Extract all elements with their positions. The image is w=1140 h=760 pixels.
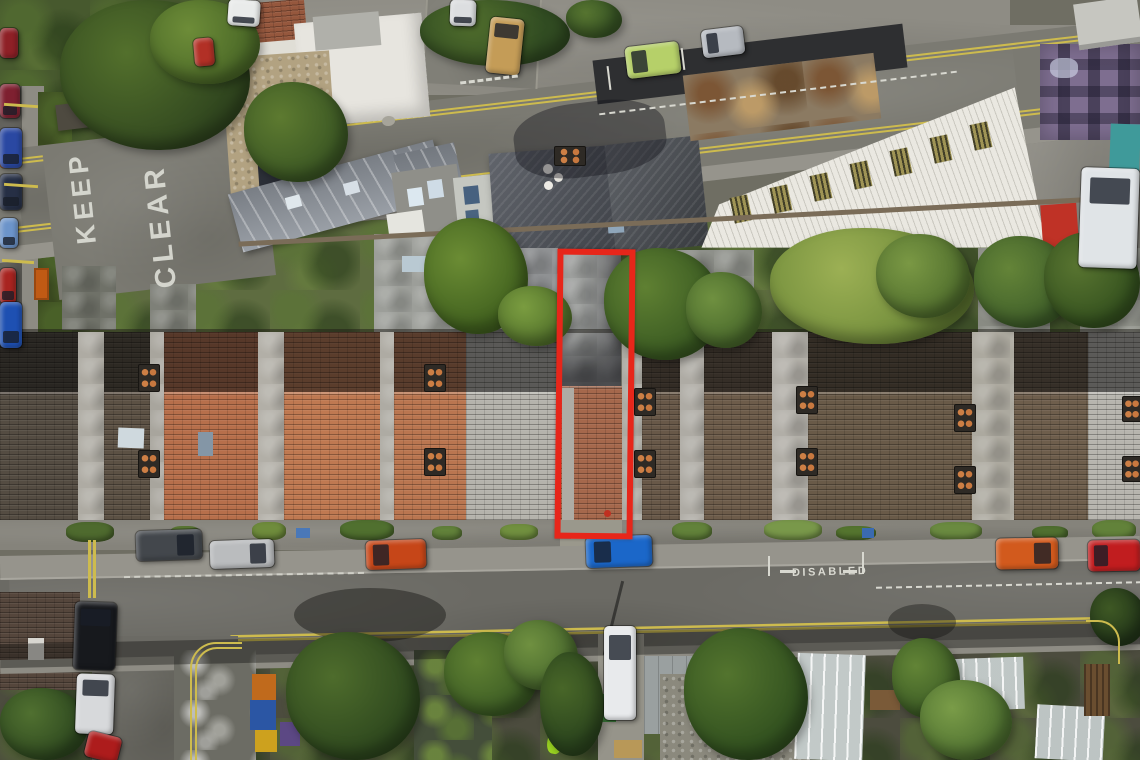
hedge [252,522,286,540]
campervan-white-windshield [609,635,631,659]
hedge [500,524,538,540]
junction-yellow-2 [93,540,96,598]
terrace-roof-front [704,392,772,527]
car-black-suv-windshield [81,608,111,627]
chimney-12 [1122,456,1140,482]
car-white-van-top-windshield [232,16,255,24]
car-black-suv [73,601,117,670]
tree [876,234,970,318]
terrace-roof-front [284,392,380,527]
terrace-roof-front [1014,392,1088,527]
car-red-left-windshield [2,291,13,300]
rooflight-2 [427,179,444,199]
hedge [432,526,462,540]
roof-vent-3 [544,181,553,190]
junction-yellow-1 [88,540,91,598]
chimney-2 [138,450,160,478]
car-dark-red-left [0,28,18,58]
terrace-roof-rear [1014,332,1088,392]
car-white-bottom-left [75,673,115,734]
rooflight-1 [407,187,424,207]
hedge [930,522,982,540]
terrace-roof-front [0,392,78,527]
wood-fence [1084,664,1110,716]
tree-shadow-road-1 [294,588,446,642]
bin-orange [252,674,276,700]
car-blue-street-windshield [594,541,612,563]
chimney-7 [796,386,818,414]
car-white-bottom-left-windshield [82,680,109,697]
aerial-photograph: KEEP CLEAR DISABLED [0,0,1140,760]
car-blue-van-left [0,302,22,348]
chimney-8 [796,448,818,476]
rear-extension-b [150,284,196,332]
car-silver-top-road-windshield [706,33,719,54]
car-red-parked-top [193,37,215,67]
front-garden-bin-1 [296,528,310,538]
chimney-11 [1122,396,1140,422]
car-silver-street-windshield [249,543,266,563]
terrace-roof-front [164,392,258,527]
chimney-6 [634,450,656,478]
hedge [340,520,394,540]
white-house-roof [313,11,382,51]
car-lime-green-windshield [631,50,648,74]
party-wall-roof [258,332,284,522]
campervan-white [604,626,636,720]
car-orange-red-street [366,539,427,570]
front-garden-bin-2 [862,528,874,538]
car-maroon-left [0,84,20,118]
truck-white-top-right-windshield [1089,177,1131,204]
car-tan-side-street-windshield [494,22,519,39]
roof-skylight-2 [198,432,213,456]
hedge [672,522,712,540]
party-wall-roof [150,332,164,522]
party-wall-roof [380,332,394,522]
slate-chimney [554,146,586,166]
hedge [764,520,822,540]
car-silver-street [210,539,275,569]
yellow-corner-2 [195,647,242,760]
chimney-4 [424,448,446,476]
car-dark-grey-street-windshield [177,534,195,556]
tree [920,680,1012,760]
car-navy-left-windshield [3,197,18,206]
car-tan-side-street [485,16,525,75]
terrace-roof-front [808,392,972,527]
bay-bracket-1 [768,556,770,576]
tree [686,272,762,348]
car-navy-left [0,174,22,210]
terrace-roof-rear [284,332,380,392]
car-red-left [0,268,16,304]
car-orange-street [996,537,1059,569]
car-blue-street [585,535,652,568]
tree [566,0,622,38]
teal-container [1109,123,1140,170]
chimney-9 [954,404,976,432]
car-white-side-street [450,0,477,26]
party-wall-roof [972,332,1014,522]
terrace-roof-rear [164,332,258,392]
car-silver-top-road [700,26,745,59]
car-light-blue-left-windshield [3,237,16,245]
chimney-1 [138,364,160,392]
graffiti-spot [1050,58,1078,78]
car-red-street-windshield [1094,545,1108,567]
car-blue-left-windshield [3,154,18,164]
party-wall-roof [772,332,808,522]
roof-skylight-1 [118,428,145,449]
car-lime-green [624,41,681,79]
terrace-roof-rear [1088,332,1140,392]
car-white-van-top [227,0,261,27]
storage-box [614,740,642,758]
facade-window-1 [463,185,480,204]
car-blue-van-left-windshield [3,331,18,343]
terrace-roof-front [466,392,560,527]
bin-blue [250,700,276,730]
rear-extension-a [62,266,116,330]
car-red-street [1088,540,1140,572]
property-boundary-highlight [554,249,635,540]
chimney-5 [634,388,656,416]
chimney-10 [954,466,976,494]
orange-sign [34,268,49,300]
bin-yellow [255,730,277,752]
disabled-bay-marking: DISABLED [792,565,869,579]
hedge [66,522,114,542]
chimney-3 [424,364,446,392]
car-orange-red-street-windshield [373,545,389,566]
corner-roof-topright [1073,0,1140,50]
car-white-side-street-windshield [454,16,472,23]
car-maroon-left-windshield [3,106,17,115]
extension-skylight [402,256,426,272]
truck-white-top-right [1078,167,1139,269]
car-orange-street-windshield [1034,542,1050,564]
car-light-blue-left [0,218,18,248]
car-dark-grey-street [135,529,202,561]
party-wall-roof [680,332,704,522]
car-blue-left [0,128,22,168]
party-wall-roof [78,332,104,522]
